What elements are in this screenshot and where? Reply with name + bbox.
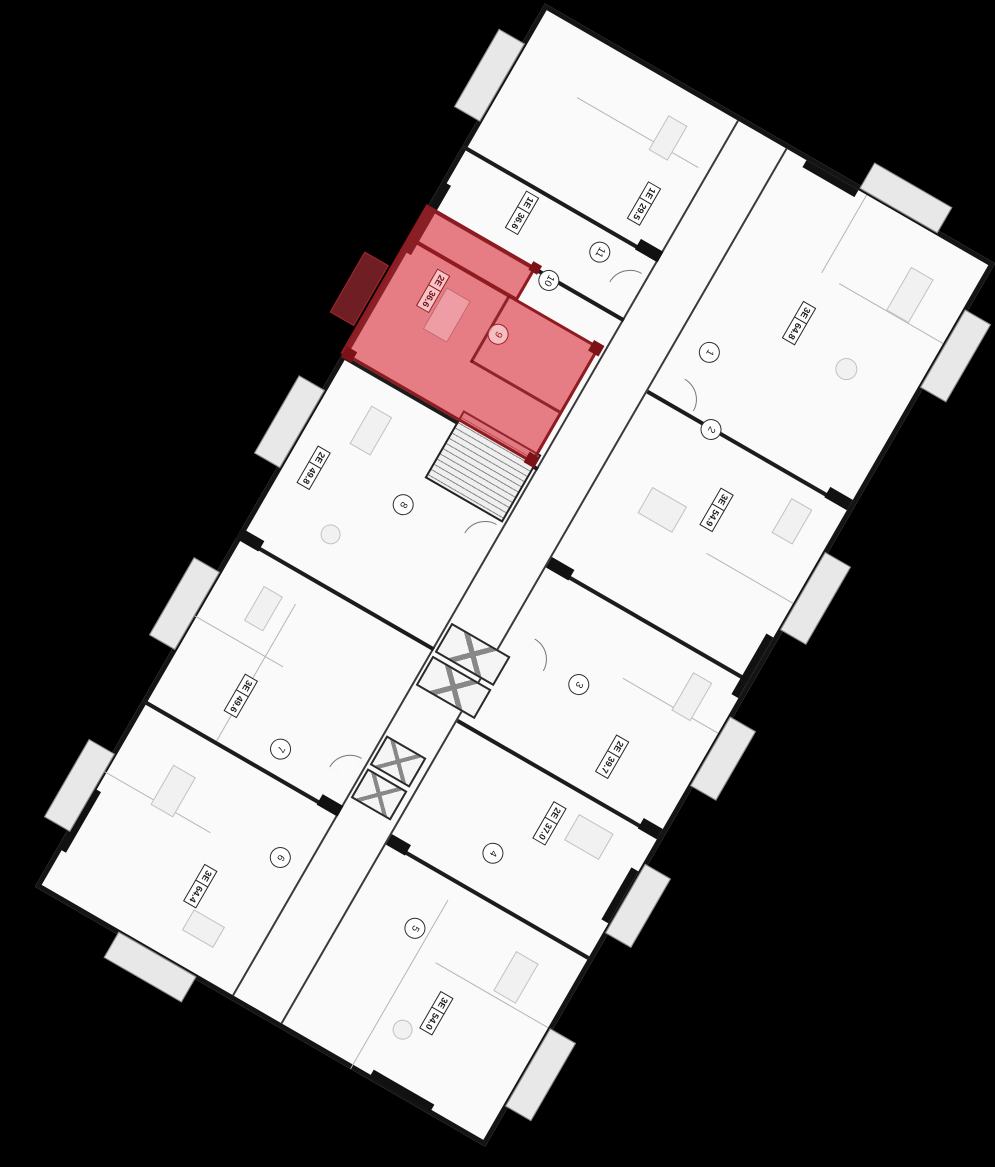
unit-label-10[interactable]: 1E36.6 (505, 190, 540, 235)
balcony (690, 716, 756, 800)
furniture (389, 1016, 416, 1043)
furniture (671, 672, 712, 721)
unit-badge-8[interactable]: 8 (389, 490, 418, 519)
furniture (350, 406, 393, 456)
furniture (493, 951, 539, 1004)
furniture (564, 814, 614, 860)
wall (546, 557, 575, 580)
unit-area: 49.6 (223, 689, 249, 719)
unit-badge-7[interactable]: 7 (266, 735, 295, 764)
furniture (772, 498, 813, 545)
furniture (317, 521, 344, 548)
unit-area: 37.0 (532, 816, 558, 846)
balcony (859, 162, 952, 233)
balcony (505, 1028, 576, 1121)
furniture (150, 765, 196, 818)
unit-area: 54.0 (419, 1006, 445, 1036)
wall (546, 563, 749, 682)
partition (706, 553, 793, 604)
wall (635, 239, 664, 262)
furniture (831, 354, 861, 384)
wall (317, 794, 344, 816)
furniture (244, 586, 283, 632)
building-slab: 3E64.8 3E54.9 2E39.7 2E37.0 3E54.0 3E64.… (35, 3, 995, 1146)
door-arc (609, 261, 642, 294)
unit-label-3[interactable]: 2E39.7 (595, 734, 630, 779)
unit-area: 54.9 (699, 503, 725, 533)
unit-label-8[interactable]: 2E49.8 (296, 445, 331, 490)
wall (731, 634, 773, 699)
wall (824, 487, 853, 510)
unit-area: 64.4 (183, 879, 209, 909)
unit-area: 29.5 (627, 197, 653, 227)
unit-area: 49.8 (296, 461, 322, 491)
unit-label-7[interactable]: 3E49.6 (223, 674, 258, 719)
furniture (637, 487, 687, 533)
door-arc (523, 638, 556, 671)
balcony (780, 552, 851, 645)
unit-badge-6[interactable]: 6 (266, 843, 295, 872)
floor-plan: 3E64.8 3E54.9 2E39.7 2E37.0 3E54.0 3E64.… (0, 0, 995, 1167)
unit-area: 39.7 (595, 750, 621, 780)
unit-label-11[interactable]: 1E29.5 (627, 181, 662, 226)
wall (370, 1070, 435, 1112)
balcony (104, 932, 197, 1003)
unit-label-4[interactable]: 2E37.0 (532, 801, 567, 846)
unit-badge-4[interactable]: 4 (479, 839, 508, 868)
unit-label-2[interactable]: 3E54.9 (699, 488, 734, 533)
wall (646, 390, 849, 509)
unit-badge-1[interactable]: 1 (695, 338, 724, 367)
door-arc (329, 746, 362, 779)
partition (821, 195, 867, 273)
unit-label-5[interactable]: 3E54.0 (419, 991, 454, 1036)
balcony (454, 29, 525, 122)
wall (638, 818, 663, 839)
partition (192, 614, 283, 667)
furniture (648, 115, 687, 161)
furniture (182, 909, 225, 948)
unit-badge-11[interactable]: 11 (585, 238, 614, 267)
wall (236, 528, 265, 551)
balcony (149, 557, 220, 650)
unit-label-1[interactable]: 3E64.8 (782, 301, 817, 346)
unit-area: 64.8 (782, 316, 808, 346)
partition (350, 900, 448, 1069)
wall (802, 160, 858, 197)
unit-area: 36.6 (505, 206, 531, 236)
furniture (886, 267, 934, 323)
balcony (920, 309, 991, 402)
unit-badge-3[interactable]: 3 (564, 670, 593, 699)
unit-label-6[interactable]: 3E64.4 (183, 864, 218, 909)
